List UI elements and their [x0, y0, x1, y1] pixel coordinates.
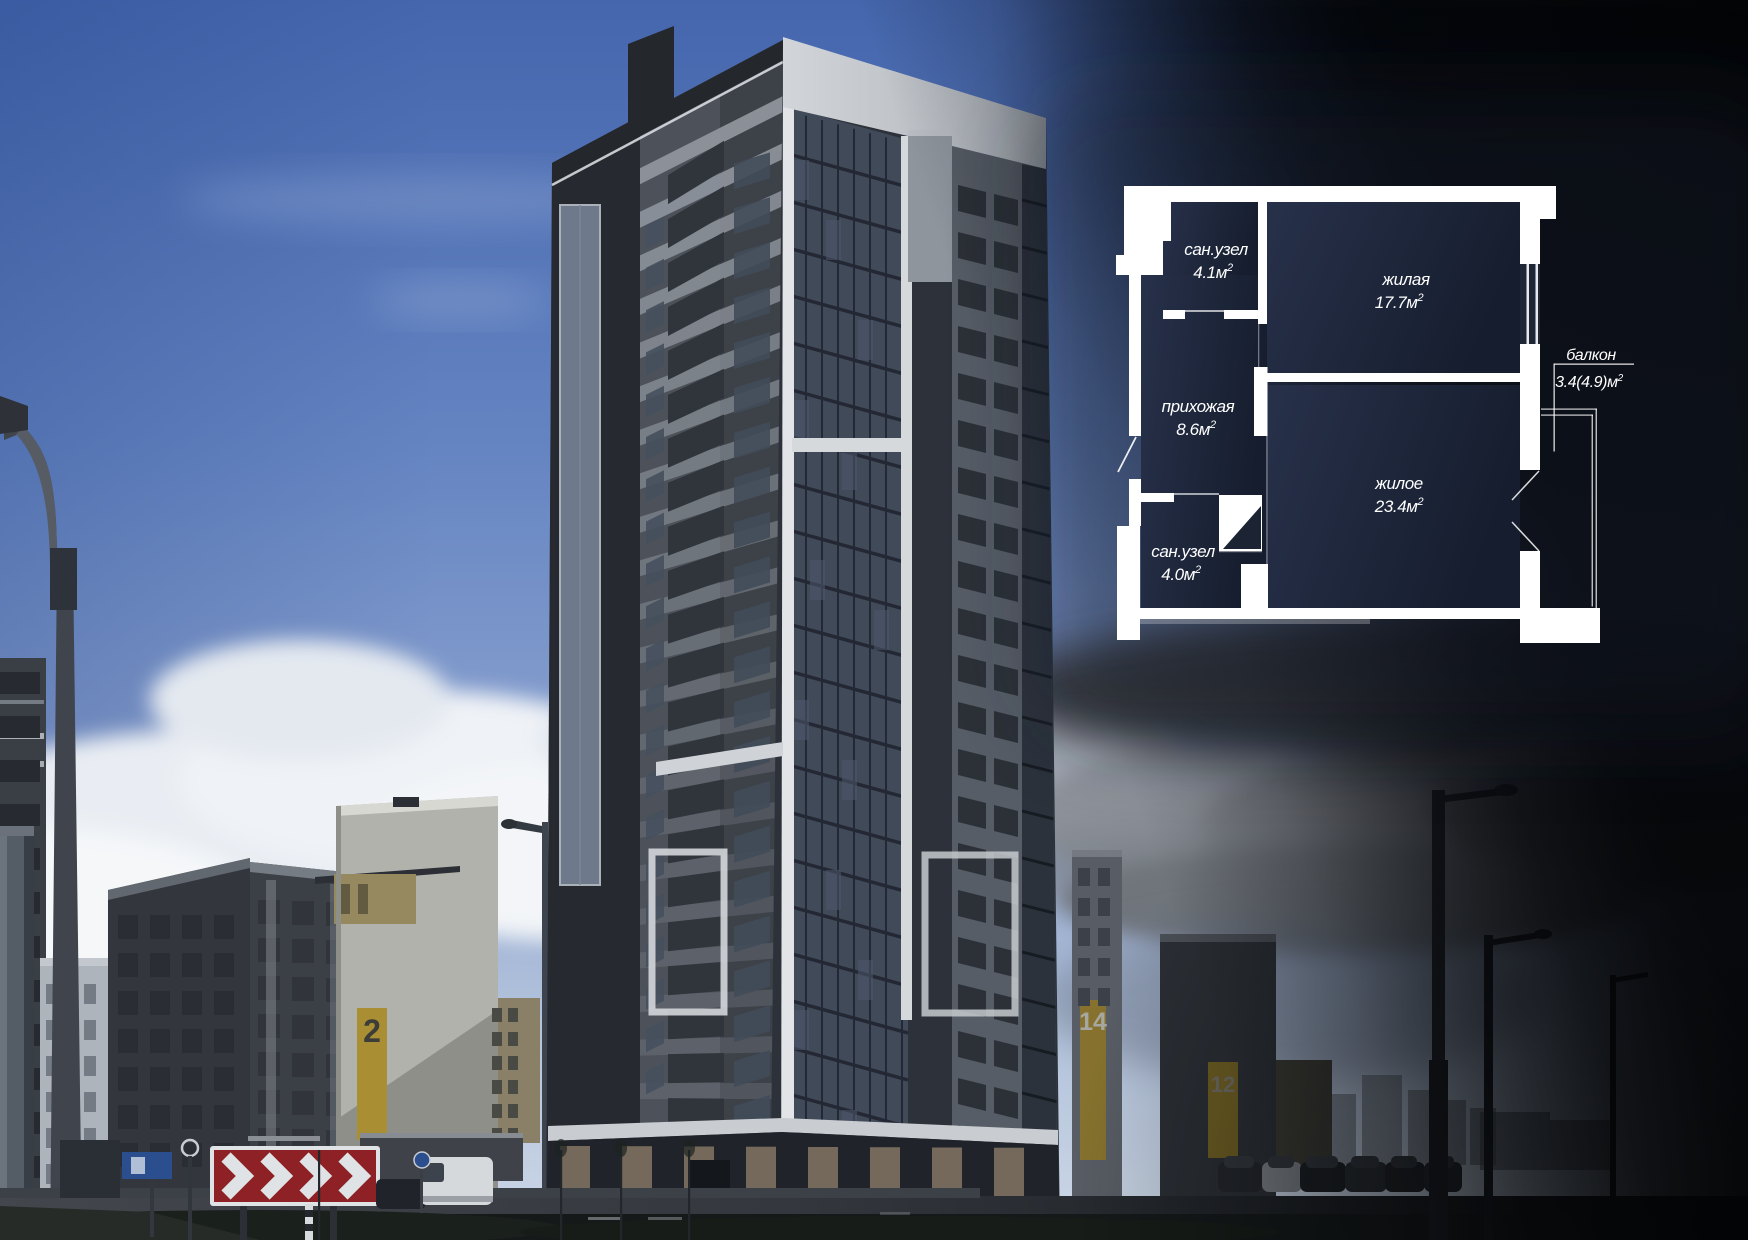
svg-text:23.4м2: 23.4м2: [1374, 496, 1424, 516]
svg-text:сан.узел: сан.узел: [1184, 240, 1248, 259]
svg-text:17.7м2: 17.7м2: [1375, 292, 1424, 312]
svg-text:жилое: жилое: [1374, 474, 1423, 493]
svg-text:балкон: балкон: [1566, 347, 1616, 364]
svg-text:3.4(4.9)м2: 3.4(4.9)м2: [1555, 373, 1624, 391]
svg-text:жилая: жилая: [1381, 270, 1430, 289]
svg-text:прихожая: прихожая: [1162, 397, 1235, 416]
svg-text:сан.узел: сан.узел: [1151, 542, 1215, 561]
